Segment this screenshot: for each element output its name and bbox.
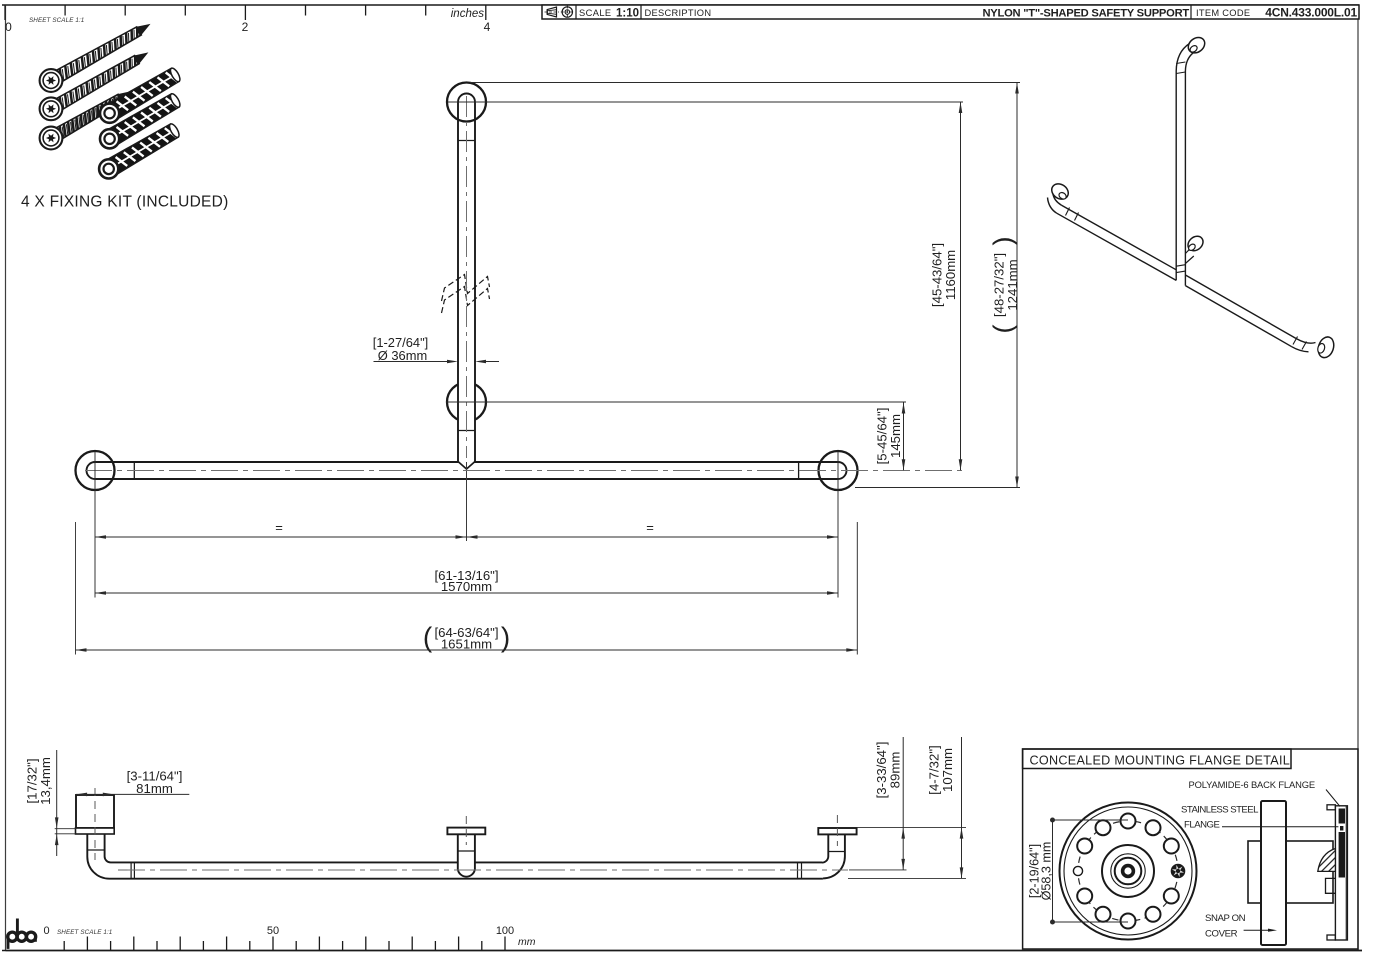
svg-text:SHEET SCALE 1:1: SHEET SCALE 1:1	[57, 929, 112, 936]
svg-text:CONCEALED MOUNTING FLANGE DETA: CONCEALED MOUNTING FLANGE DETAIL	[1030, 753, 1291, 767]
svg-text:4CN.433.000L.01: 4CN.433.000L.01	[1265, 5, 1357, 19]
svg-text:[5-45/64"]: [5-45/64"]	[874, 408, 889, 465]
svg-text:13,4mm: 13,4mm	[38, 757, 53, 805]
svg-text:0: 0	[43, 925, 49, 937]
svg-text:FLANGE: FLANGE	[1184, 820, 1219, 831]
svg-text:DESCRIPTION: DESCRIPTION	[645, 8, 712, 18]
svg-text:100: 100	[496, 925, 514, 937]
svg-text:89mm: 89mm	[888, 752, 903, 789]
svg-text:SHEET SCALE 1:1: SHEET SCALE 1:1	[29, 17, 84, 24]
svg-text:STAINLESS STEEL: STAINLESS STEEL	[1181, 805, 1259, 816]
svg-text:0: 0	[5, 20, 12, 34]
svg-text:1570mm: 1570mm	[441, 579, 492, 594]
svg-text:(: (	[988, 325, 1018, 334]
svg-text:[4-7/32"]: [4-7/32"]	[926, 745, 941, 794]
svg-text:81mm: 81mm	[136, 781, 173, 796]
svg-text:1651mm: 1651mm	[441, 637, 492, 652]
svg-text:[3-33/64"]: [3-33/64"]	[874, 742, 889, 799]
svg-text:[48-27/32"]: [48-27/32"]	[991, 253, 1006, 317]
svg-text:inches: inches	[451, 8, 484, 20]
svg-text:145mm: 145mm	[888, 414, 903, 458]
svg-text:=: =	[646, 520, 654, 535]
svg-text:107mm: 107mm	[940, 748, 955, 792]
svg-text:[45-43/64"]: [45-43/64"]	[929, 243, 944, 307]
svg-text:2: 2	[242, 20, 249, 34]
svg-text:NYLON "T"-SHAPED SAFETY SUPPOR: NYLON "T"-SHAPED SAFETY SUPPORT	[982, 7, 1189, 19]
svg-text:Ø 36mm: Ø 36mm	[378, 348, 427, 363]
svg-text:50: 50	[267, 925, 279, 937]
svg-text:POLYAMIDE-6 BACK FLANGE: POLYAMIDE-6 BACK FLANGE	[1189, 779, 1315, 790]
svg-text:[17/32"]: [17/32"]	[24, 758, 39, 803]
svg-text:(: (	[423, 622, 433, 653]
svg-text:4: 4	[484, 20, 491, 34]
svg-text:=: =	[275, 520, 283, 535]
svg-text:ITEM CODE: ITEM CODE	[1196, 8, 1250, 18]
svg-text:4 X FIXING KIT (INCLUDED): 4 X FIXING KIT (INCLUDED)	[21, 194, 229, 211]
svg-text:1:10: 1:10	[616, 8, 639, 20]
svg-text:mm: mm	[518, 936, 536, 948]
svg-text:COVER: COVER	[1205, 929, 1238, 940]
svg-text:): )	[988, 237, 1018, 246]
svg-text:SCALE: SCALE	[579, 8, 612, 18]
svg-text:SNAP ON: SNAP ON	[1205, 913, 1246, 924]
svg-text:): )	[501, 622, 510, 653]
svg-text:Ø58,3 mm: Ø58,3 mm	[1040, 842, 1054, 901]
svg-text:1160mm: 1160mm	[943, 250, 958, 300]
svg-text:1241mm: 1241mm	[1005, 259, 1020, 310]
